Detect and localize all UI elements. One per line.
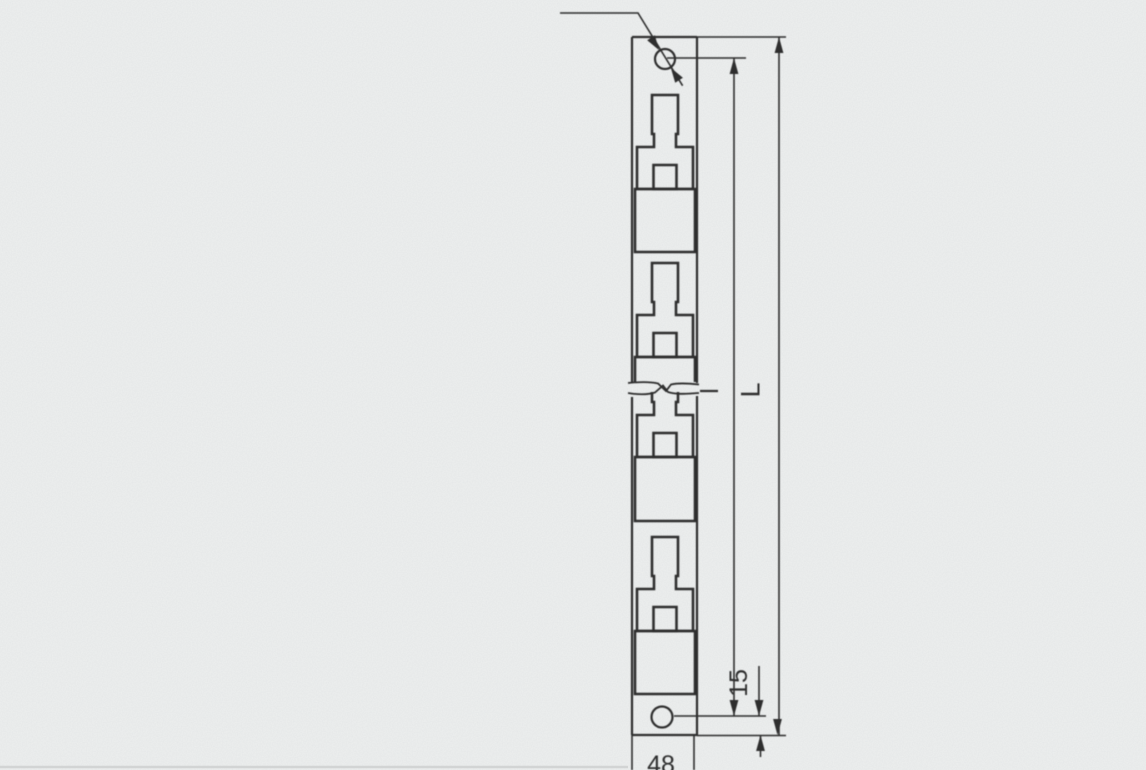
- paper-grain-texture: [0, 0, 1146, 770]
- dim-label-strip-width: 48: [647, 751, 675, 770]
- dim-label-overall-length: L: [736, 382, 766, 397]
- drawing-page: l L 15 48: [0, 0, 1146, 770]
- dim-label-hole-to-edge: 15: [725, 669, 753, 697]
- terminal-strip-drawing: l L 15 48: [0, 0, 1146, 770]
- dim-label-hole-spacing: l: [696, 388, 724, 394]
